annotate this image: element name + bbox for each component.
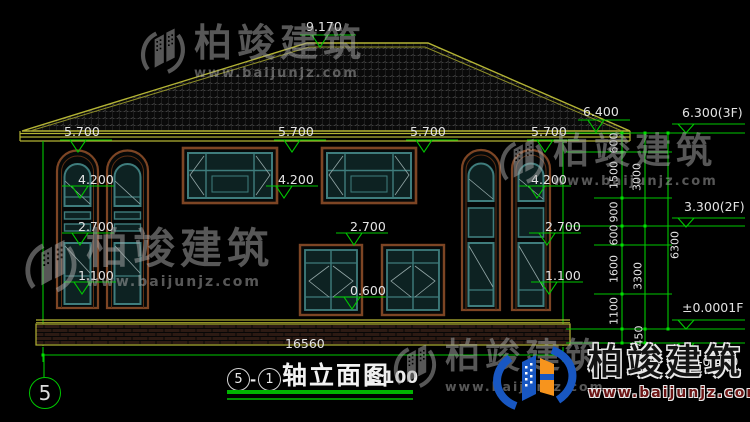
elevation-label-winhead1f: 1.100 xyxy=(78,270,114,283)
dim-chain-value: 1100 xyxy=(609,297,620,325)
dim-chain-value: 600 xyxy=(609,225,620,246)
elevation-label-3f: 6.300(3F) xyxy=(682,107,743,120)
elevation-drawing xyxy=(0,0,750,422)
axis-bubble-5: 5 xyxy=(29,377,61,409)
elevation-label-ridge: 9.170 xyxy=(306,21,342,34)
dim-chain-value: 900 xyxy=(609,202,620,223)
elevation-label-1f: ±0.0001F xyxy=(682,302,743,315)
dim-chain-value: 3000 xyxy=(632,163,643,191)
wide-window-2f xyxy=(183,148,277,203)
cad-elevation-screenshot: 9.170 5.700 5.700 5.700 5.700 6.400 6.30… xyxy=(0,0,750,422)
elevation-label-sill2f: 2.700 xyxy=(350,221,386,234)
arched-window-right xyxy=(462,150,500,310)
dim-chain-value: 6300 xyxy=(670,231,681,259)
elevation-label-winhead2f: 4.200 xyxy=(531,174,567,187)
dim-total-width: 16560 xyxy=(285,338,325,351)
elevation-label-eave: 5.700 xyxy=(531,126,567,139)
title-dash: - xyxy=(250,371,256,389)
elevation-label-eave: 5.700 xyxy=(64,126,100,139)
window-1f xyxy=(382,245,444,315)
window-1f xyxy=(300,245,362,315)
elevation-label-eave-right: 6.400 xyxy=(583,106,619,119)
title-underline-thick xyxy=(227,390,413,394)
dim-chain-value: 600 xyxy=(609,133,620,154)
dim-chain-value: 1500 xyxy=(609,161,620,189)
elevation-label-eave: 5.700 xyxy=(410,126,446,139)
title-axis-circle-end: 1 xyxy=(258,368,281,391)
dim-chain-value: 450 xyxy=(634,326,645,347)
elevation-label-sill1f: 0.600 xyxy=(350,285,386,298)
title-underline-thin xyxy=(227,398,413,400)
dim-chain-value: 3300 xyxy=(633,262,644,290)
title-axis-circle-start: 5 xyxy=(227,368,250,391)
elevation-label-eave: 5.700 xyxy=(278,126,314,139)
elevation-label-2f: 3.300(2F) xyxy=(684,201,745,214)
elevation-label-winhead2f: 4.200 xyxy=(78,174,114,187)
elevation-label-ground: -0.450 xyxy=(698,356,738,369)
elevation-label-sill2f: 2.700 xyxy=(545,221,581,234)
wide-window-2f xyxy=(322,148,416,203)
elevation-label-winhead2f: 4.200 xyxy=(278,174,314,187)
elevation-label-sill2f: 2.700 xyxy=(78,221,114,234)
elevation-label-winhead1f: 1.100 xyxy=(545,270,581,283)
dim-chain-value: 1600 xyxy=(609,255,620,283)
drawing-scale: 1:100 xyxy=(364,370,418,387)
